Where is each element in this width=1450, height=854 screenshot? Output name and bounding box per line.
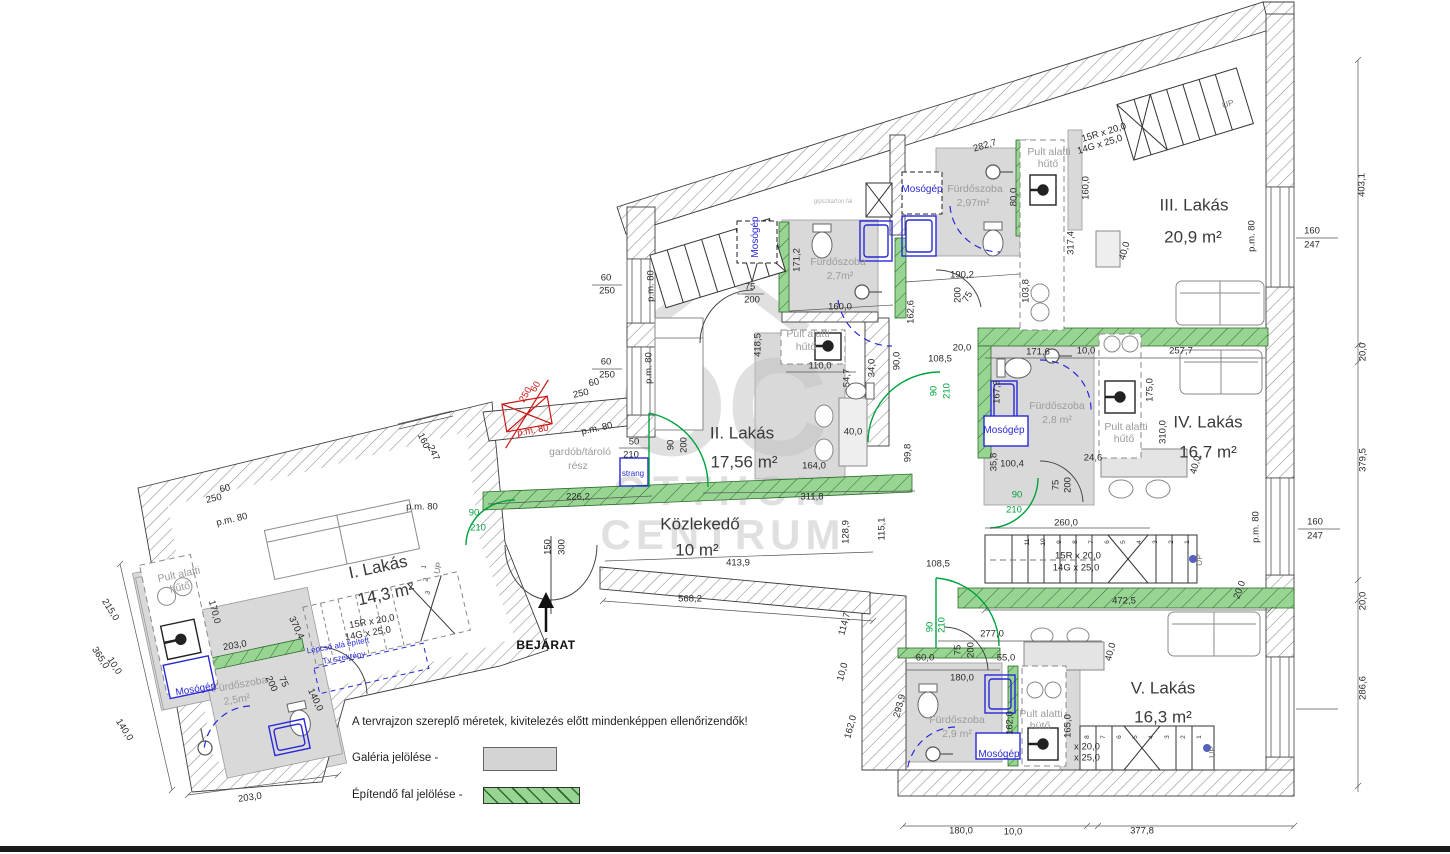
watermark-centrum: CENTRUM <box>601 511 846 558</box>
galeria-swatch <box>483 747 557 771</box>
bed-unit2 <box>655 318 703 430</box>
table-unit5 <box>1024 628 1104 670</box>
floor-plan-page: OC OTTHON CENTRUM <box>0 0 1450 854</box>
stairs-middle <box>985 535 1197 583</box>
desk-unit3 <box>1096 231 1120 267</box>
kitchen-unit3 <box>1020 140 1064 330</box>
stairs-unit3 <box>1117 68 1253 160</box>
legend-epitendo-label: Építendő fal jelölése - <box>352 789 463 801</box>
sofa-unit4 <box>1180 350 1262 394</box>
entrance-arrow <box>538 592 554 632</box>
stairs-unit5 <box>1080 726 1214 770</box>
plan-note: A tervrajzon szereplő méretek, kivitelez… <box>352 716 748 728</box>
epitendo-swatch <box>483 787 580 804</box>
legend-galeria-label: Galéria jelölése - <box>352 752 438 764</box>
sofa-unit3 <box>1176 281 1264 325</box>
sofa-unit5 <box>1168 612 1260 656</box>
shaft <box>866 183 892 217</box>
bottom-frame-bar <box>0 846 1450 852</box>
